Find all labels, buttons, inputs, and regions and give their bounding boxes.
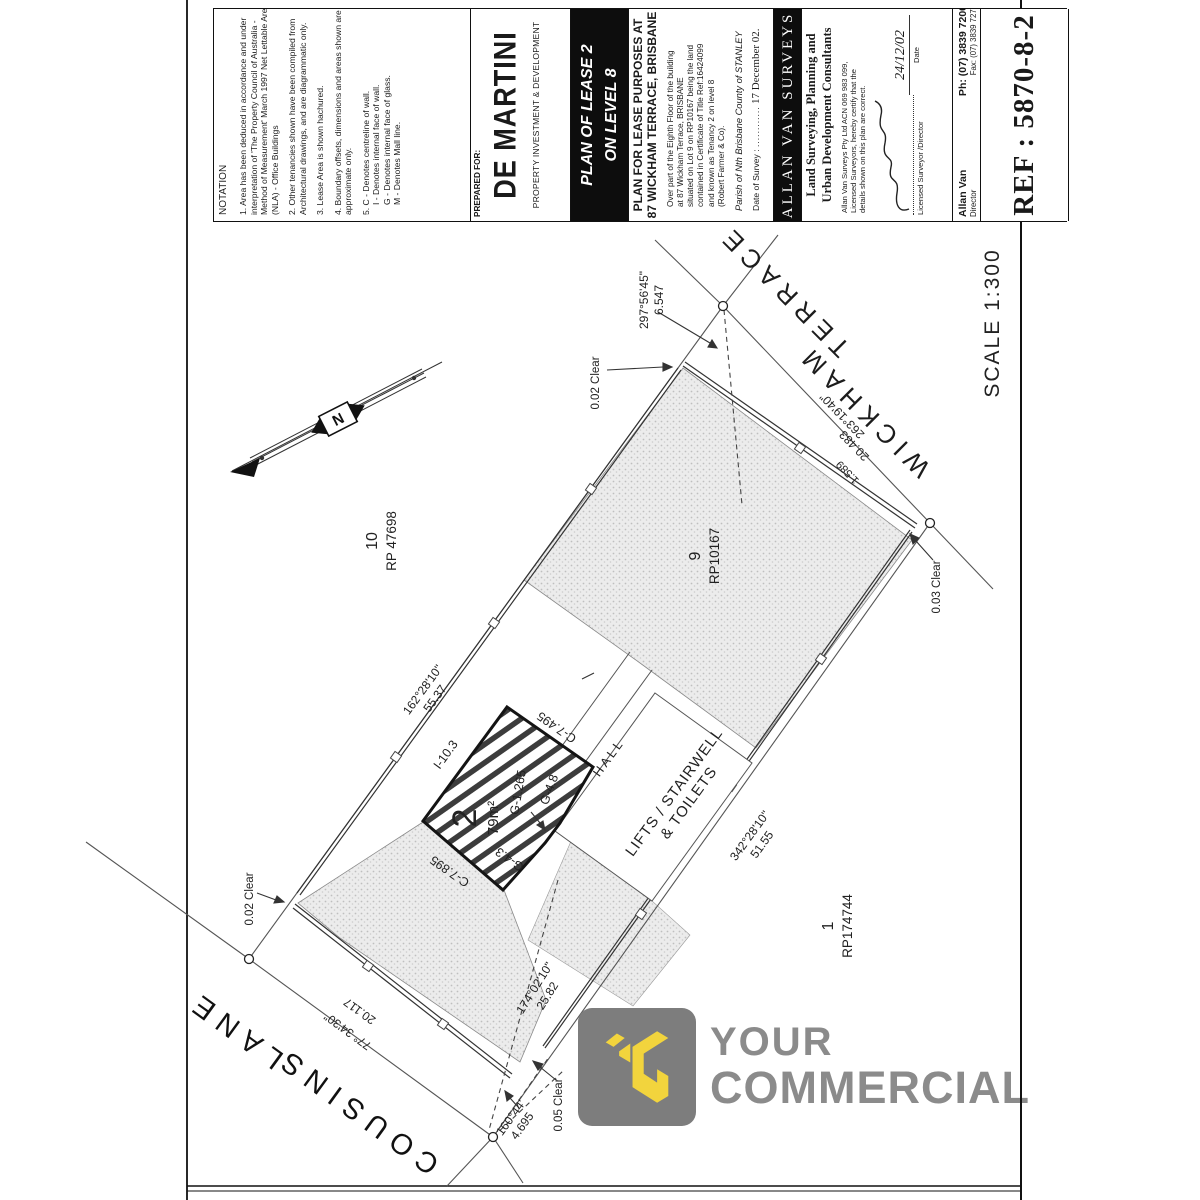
clear-005: 0.05 Clear — [553, 1078, 565, 1131]
purpose-desc-line: (Robert Farmer & Co). — [717, 9, 727, 207]
logo-word-your: YOUR — [710, 1022, 1030, 1062]
svg-text:1: 1 — [820, 921, 837, 930]
notation-note: M - Denotes Mall line. — [392, 9, 402, 205]
principal-name: Allan Van — [957, 170, 969, 217]
notation-note: G - Denotes internal face of glass. — [382, 9, 392, 205]
plan-title-line1: PLAN OF LEASE 2 — [576, 9, 600, 221]
purpose-desc-line: Over part of the Eighth Floor of the bui… — [666, 9, 676, 207]
svg-text:79m²: 79m² — [485, 801, 502, 835]
scale-label: SCALE 1:300 — [981, 248, 1004, 397]
lot1-label: 1 RP174744 — [820, 894, 855, 958]
notation-box: NOTATION 1. Area has been deduced in acc… — [213, 9, 471, 221]
client-name: DE MARTINI — [488, 9, 524, 221]
plan-title-line2: ON LEVEL 8 — [600, 9, 624, 221]
street-cousins: COUSINS — [268, 1040, 445, 1181]
principal-role: Director — [969, 190, 978, 217]
logo-square — [578, 1008, 696, 1126]
firm-tagline2: Urban Development Consultants — [820, 9, 834, 221]
logo-yc-monogram — [601, 1029, 673, 1105]
street-terrace: TERRACE — [712, 220, 856, 364]
client-subtitle: PROPERTY INVESTMENT & DEVELOPMENT — [531, 9, 541, 221]
bearing-77: 77° 34'30" 20.117 — [321, 995, 378, 1053]
notation-note: 2. Other tenancies shown have been compi… — [287, 9, 308, 215]
date-label: Date — [912, 15, 921, 95]
watermark-logo: YOUR COMMERCIAL — [578, 1008, 1030, 1126]
date-of-survey-row: Date of Survey : ............ 17 Decembe… — [750, 9, 762, 211]
clear-002-bottom: 0.02 Clear — [244, 872, 256, 925]
purpose-heading1: PLAN FOR LEASE PURPOSES AT — [632, 9, 646, 221]
signature-line — [869, 95, 914, 215]
svg-text:6.547: 6.547 — [652, 285, 666, 315]
notation-heading: NOTATION — [218, 9, 230, 215]
logo-wordmark: YOUR COMMERCIAL — [710, 1022, 1030, 1110]
notation-note: 3. Lease Area is shown hachured. — [315, 9, 325, 215]
svg-text:2: 2 — [446, 809, 484, 828]
reference-number: REF : 5870-8-2 — [1008, 14, 1041, 215]
purpose-box: PLAN FOR LEASE PURPOSES AT 87 WICKHAM TE… — [628, 9, 774, 221]
edge-i103: I-10.3 — [431, 738, 461, 772]
firm-banner: ALLAN VAN SURVEYS — [780, 12, 797, 219]
date-leader-dots: ............ — [751, 106, 761, 147]
signature-label: Licensed Surveyor /Director — [916, 95, 925, 215]
fax-number: Fax: (07) 3839 7277 — [969, 9, 978, 75]
purpose-heading2: 87 WICKHAM TERRACE, BRISBANE — [646, 9, 660, 221]
prepared-for-label: PREPARED FOR: — [471, 9, 482, 221]
purpose-desc-line: and known as Tenancy 2 on level 8 — [707, 9, 717, 207]
firm-tagline1: Land Surveying, Planning and — [804, 9, 818, 221]
street-lane: LANE — [180, 983, 289, 1075]
contact-box: Allan Van Ph: (07) 3839 7200 Director Fa… — [952, 9, 981, 221]
svg-text:RP174744: RP174744 — [840, 894, 855, 958]
surveyor-box: Land Surveying, Planning and Urban Devel… — [801, 9, 953, 221]
bearing-160: 160°44' 4.695 — [493, 1097, 539, 1146]
clear-003: 0.03 Clear — [931, 560, 943, 613]
certification-line: Licensed Surveyors, hereby certify that … — [849, 9, 858, 213]
certification-line: details shown on this plan are correct. — [858, 9, 867, 213]
notation-note: 4. Boundary offsets, dimensions and area… — [333, 9, 354, 215]
purpose-desc-line: at 87 Wickham Terrace, BRISBANE — [676, 9, 686, 207]
signature-squiggle — [869, 97, 913, 215]
bearing-342: 342°28'10" 51.55 — [727, 808, 785, 872]
lot10-label: 10 RP 47698 — [364, 511, 399, 571]
prepared-for-box: PREPARED FOR: DE MARTINI PROPERTY INVEST… — [470, 9, 571, 221]
clear-002-top: 0.02 Clear — [590, 356, 602, 409]
svg-text:9: 9 — [687, 551, 704, 560]
notation-note: I - Denotes internal face of wall. — [371, 9, 381, 205]
handwritten-date: 24/12/02 — [869, 15, 910, 95]
svg-text:RP 47698: RP 47698 — [384, 511, 399, 571]
title-block-strip: NOTATION 1. Area has been deduced in acc… — [213, 8, 1067, 222]
firm-banner-band: ALLAN VAN SURVEYS — [773, 9, 802, 221]
notation-note: 1. Area has been deduced in accordance a… — [238, 9, 280, 215]
phone-number: Ph: (07) 3839 7200 — [957, 9, 969, 96]
plan-title-band: PLAN OF LEASE 2 ON LEVEL 8 — [570, 9, 629, 221]
svg-text:297°56'45": 297°56'45" — [637, 271, 651, 329]
logo-word-commercial: COMMERCIAL — [710, 1065, 1030, 1110]
offset-1589: 1.589 — [834, 458, 862, 486]
purpose-desc-line: contained in Certificate of Title Ref:16… — [696, 9, 706, 207]
svg-text:10: 10 — [364, 532, 381, 550]
leader-arrows — [257, 312, 933, 1108]
notation-note: 5. C - Denotes centreline of wall. — [361, 9, 371, 215]
bearing-297: 297°56'45" 6.547 — [637, 271, 666, 329]
date-of-survey-label: Date of Survey : — [751, 149, 761, 211]
parish-county: Parish of Nth Brisbane County of STANLEY — [734, 9, 744, 211]
survey-plan-scan: N WICKHAM TERRACE COUSINS LANE SCALE 1:3… — [0, 0, 1200, 1200]
north-arrow: N — [230, 362, 442, 477]
purpose-desc-line: situated on Lot 9 on RP10167 being the l… — [686, 9, 696, 207]
ref-box: REF : 5870-8-2 — [980, 9, 1069, 221]
svg-text:RP10167: RP10167 — [707, 528, 722, 584]
date-of-survey-value: 17 December 02. — [750, 28, 762, 103]
certification-line: Allan Van Surveys Pty Ltd ACN 069 983 09… — [840, 9, 849, 213]
